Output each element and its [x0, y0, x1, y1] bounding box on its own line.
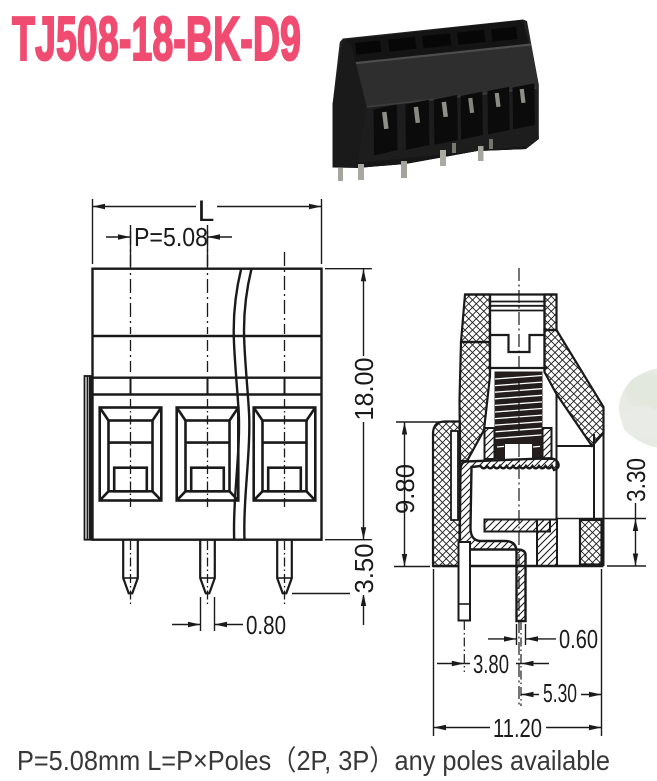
- svg-text:5.30: 5.30: [543, 678, 577, 708]
- svg-text:P=5.08mm L=P×Poles（2P, 3P）any: P=5.08mm L=P×Poles（2P, 3P）any poles avai…: [17, 745, 610, 776]
- svg-text:0.60: 0.60: [559, 624, 598, 654]
- svg-text:3.80: 3.80: [473, 649, 509, 679]
- svg-text:9.80: 9.80: [390, 464, 420, 514]
- svg-text:TJ508-18-BK-D9: TJ508-18-BK-D9: [12, 5, 301, 74]
- svg-text:11.20: 11.20: [493, 713, 542, 743]
- svg-text:0.80: 0.80: [246, 610, 286, 640]
- svg-text:3.50: 3.50: [349, 544, 379, 594]
- svg-text:P=5.08: P=5.08: [134, 222, 208, 252]
- svg-text:18.00: 18.00: [349, 358, 379, 421]
- svg-text:3.30: 3.30: [621, 458, 651, 502]
